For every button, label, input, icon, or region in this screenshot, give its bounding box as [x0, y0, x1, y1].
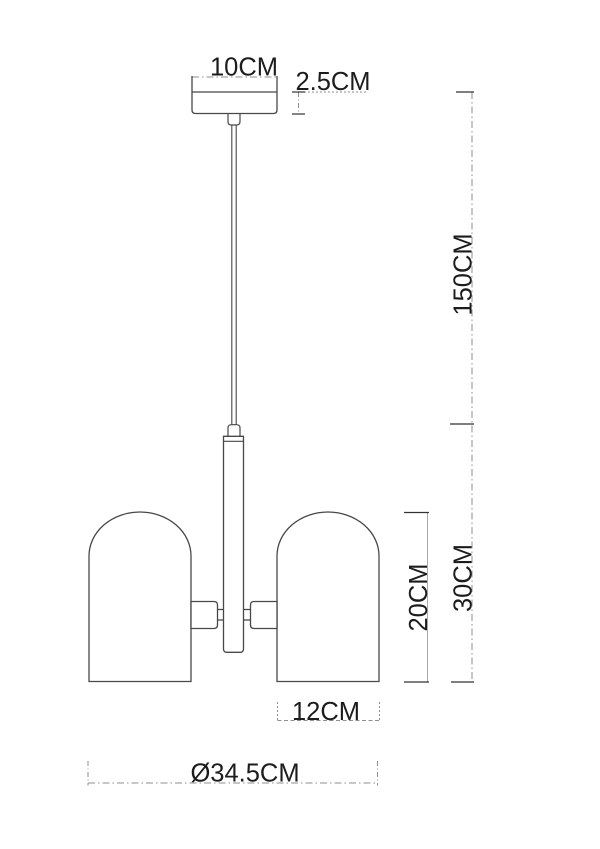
- svg-text:150CM: 150CM: [450, 233, 478, 315]
- svg-text:12CM: 12CM: [292, 698, 360, 726]
- svg-text:Ø34.5CM: Ø34.5CM: [190, 760, 299, 788]
- svg-text:30CM: 30CM: [450, 544, 478, 612]
- svg-text:10CM: 10CM: [210, 54, 278, 82]
- svg-text:20CM: 20CM: [405, 563, 433, 631]
- svg-text:2.5CM: 2.5CM: [295, 68, 370, 96]
